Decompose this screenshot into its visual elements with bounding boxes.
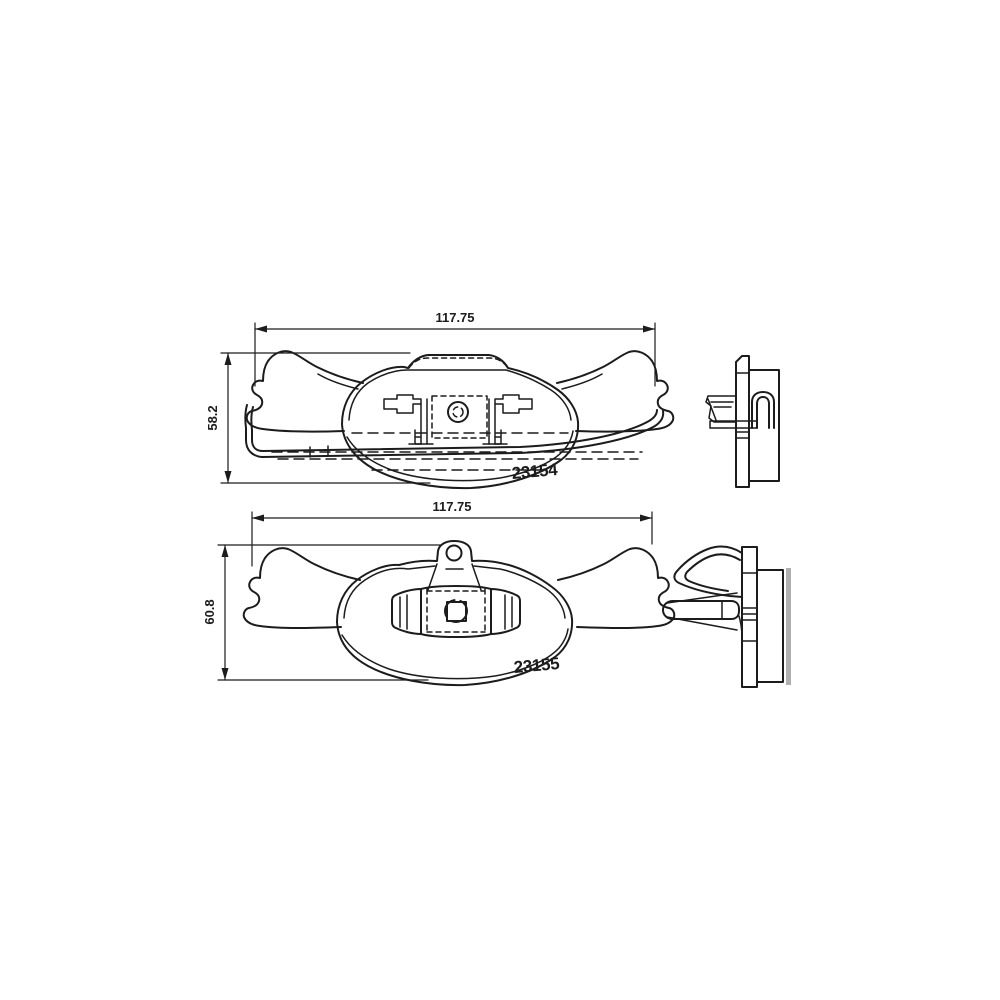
damper-circle: [445, 600, 467, 622]
drawing-svg: 117.75 58.2: [0, 0, 1000, 1000]
wing-right-top: [557, 351, 673, 431]
damper-hidden-lines: [427, 589, 485, 634]
backplate-profile: [742, 547, 757, 687]
dimension-width-top-label: 117.75: [435, 310, 474, 325]
wear-clip-right: [483, 395, 532, 444]
arrowhead: [222, 545, 229, 557]
shim-tab-hidden-edge: [409, 358, 508, 368]
wing-right-bottom: [558, 548, 674, 628]
friction-block-profile: [757, 570, 783, 682]
spring-hook-profile: [752, 392, 774, 428]
dimension-height-top: 58.2: [205, 353, 430, 483]
clip-upper-inner: [685, 554, 740, 591]
clip-foot: [415, 430, 421, 444]
arrowhead: [255, 326, 267, 333]
dimension-height-bottom: 60.8: [202, 545, 440, 680]
clip-foot: [495, 430, 501, 444]
clip-post: [421, 399, 427, 444]
clip-detail: [708, 399, 733, 420]
clip-outline: [706, 396, 736, 422]
side-view-top: [706, 356, 779, 487]
tab-hole: [447, 546, 462, 561]
clip-post: [489, 399, 495, 444]
brake-pad-technical-drawing: 117.75 58.2: [0, 0, 1000, 1000]
arrowhead: [225, 353, 232, 365]
center-hole-hidden: [453, 407, 463, 417]
damper-arcs: [421, 586, 491, 637]
part-number-bottom: 23155: [513, 654, 560, 677]
plate-detail-lines: [742, 573, 757, 641]
arrowhead: [252, 515, 264, 522]
part-number-top: 23154: [511, 460, 559, 483]
side-view-bottom: [663, 547, 791, 687]
clip-flag: [495, 395, 532, 413]
arrowhead: [640, 515, 652, 522]
wing-left-top: [247, 351, 363, 431]
center-hole: [448, 402, 468, 422]
arrowhead: [643, 326, 655, 333]
wing-left-bottom: [244, 548, 360, 628]
dimension-width-top: 117.75: [255, 310, 655, 386]
dimension-width-bottom-label: 117.75: [432, 499, 471, 514]
dimension-width-bottom: 117.75: [252, 499, 652, 566]
front-view-top: 117.75 58.2: [205, 310, 673, 488]
damper-wing-lines: [400, 595, 512, 629]
clip-flag: [384, 395, 421, 413]
front-view-bottom: 117.75 60.8: [202, 499, 674, 685]
retaining-spring-clip: [663, 547, 742, 638]
arrowhead: [225, 471, 232, 483]
center-damper: [392, 586, 520, 637]
hook-inner: [757, 397, 769, 428]
rotor-surface-line: [786, 568, 791, 685]
dimension-height-top-label: 58.2: [205, 405, 220, 430]
dimension-height-bottom-label: 60.8: [202, 599, 217, 624]
arrowhead: [222, 668, 229, 680]
clip-arm-lines: [667, 593, 737, 630]
clip-upper-outer: [674, 547, 742, 597]
wear-clip-left: [384, 395, 433, 444]
